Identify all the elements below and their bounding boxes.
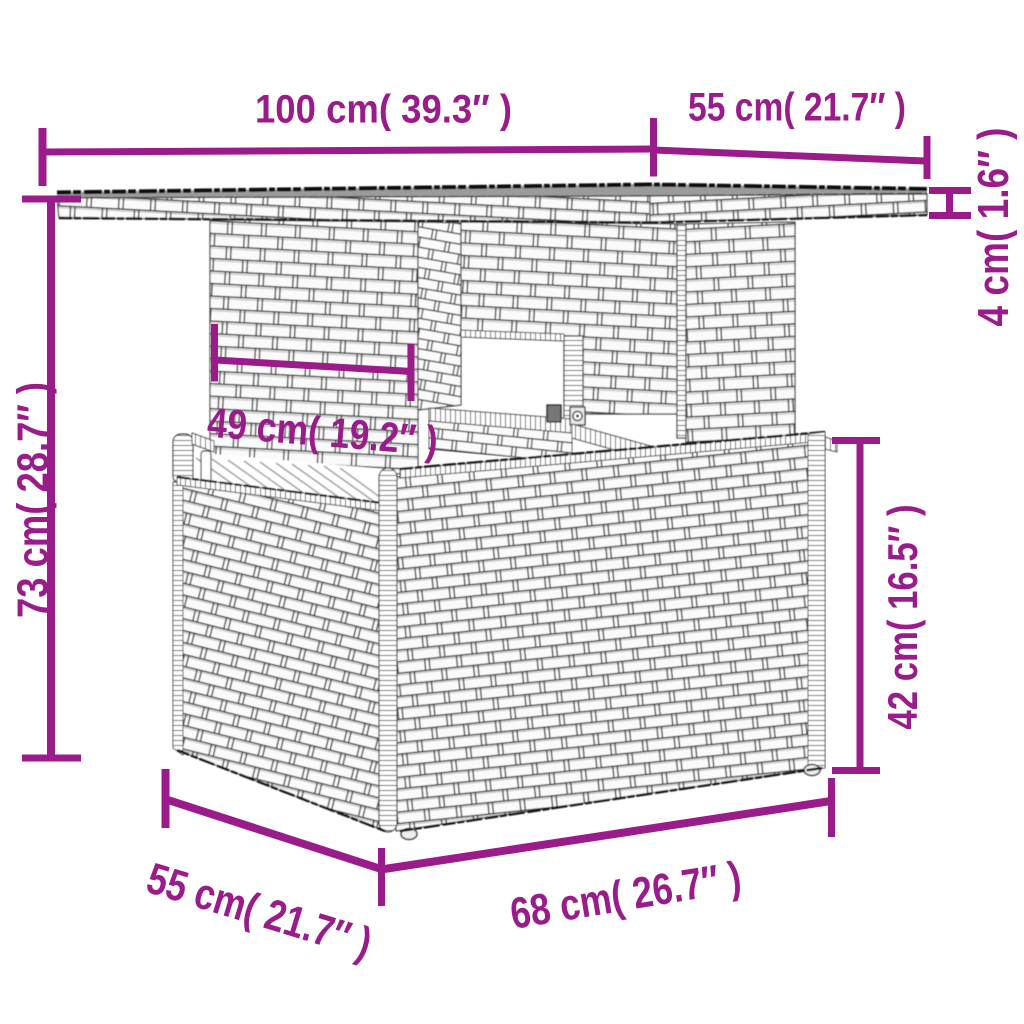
svg-text:42 cm( 16.5″ ): 42 cm( 16.5″ ): [879, 505, 926, 730]
svg-text:55 cm( 21.7″ ): 55 cm( 21.7″ ): [688, 86, 906, 130]
svg-text:100 cm( 39.3″ ): 100 cm( 39.3″ ): [255, 88, 512, 132]
svg-text:4 cm( 1.6″ ): 4 cm( 1.6″ ): [969, 128, 1018, 327]
svg-text:73 cm( 28.7″ ): 73 cm( 28.7″ ): [9, 382, 58, 618]
